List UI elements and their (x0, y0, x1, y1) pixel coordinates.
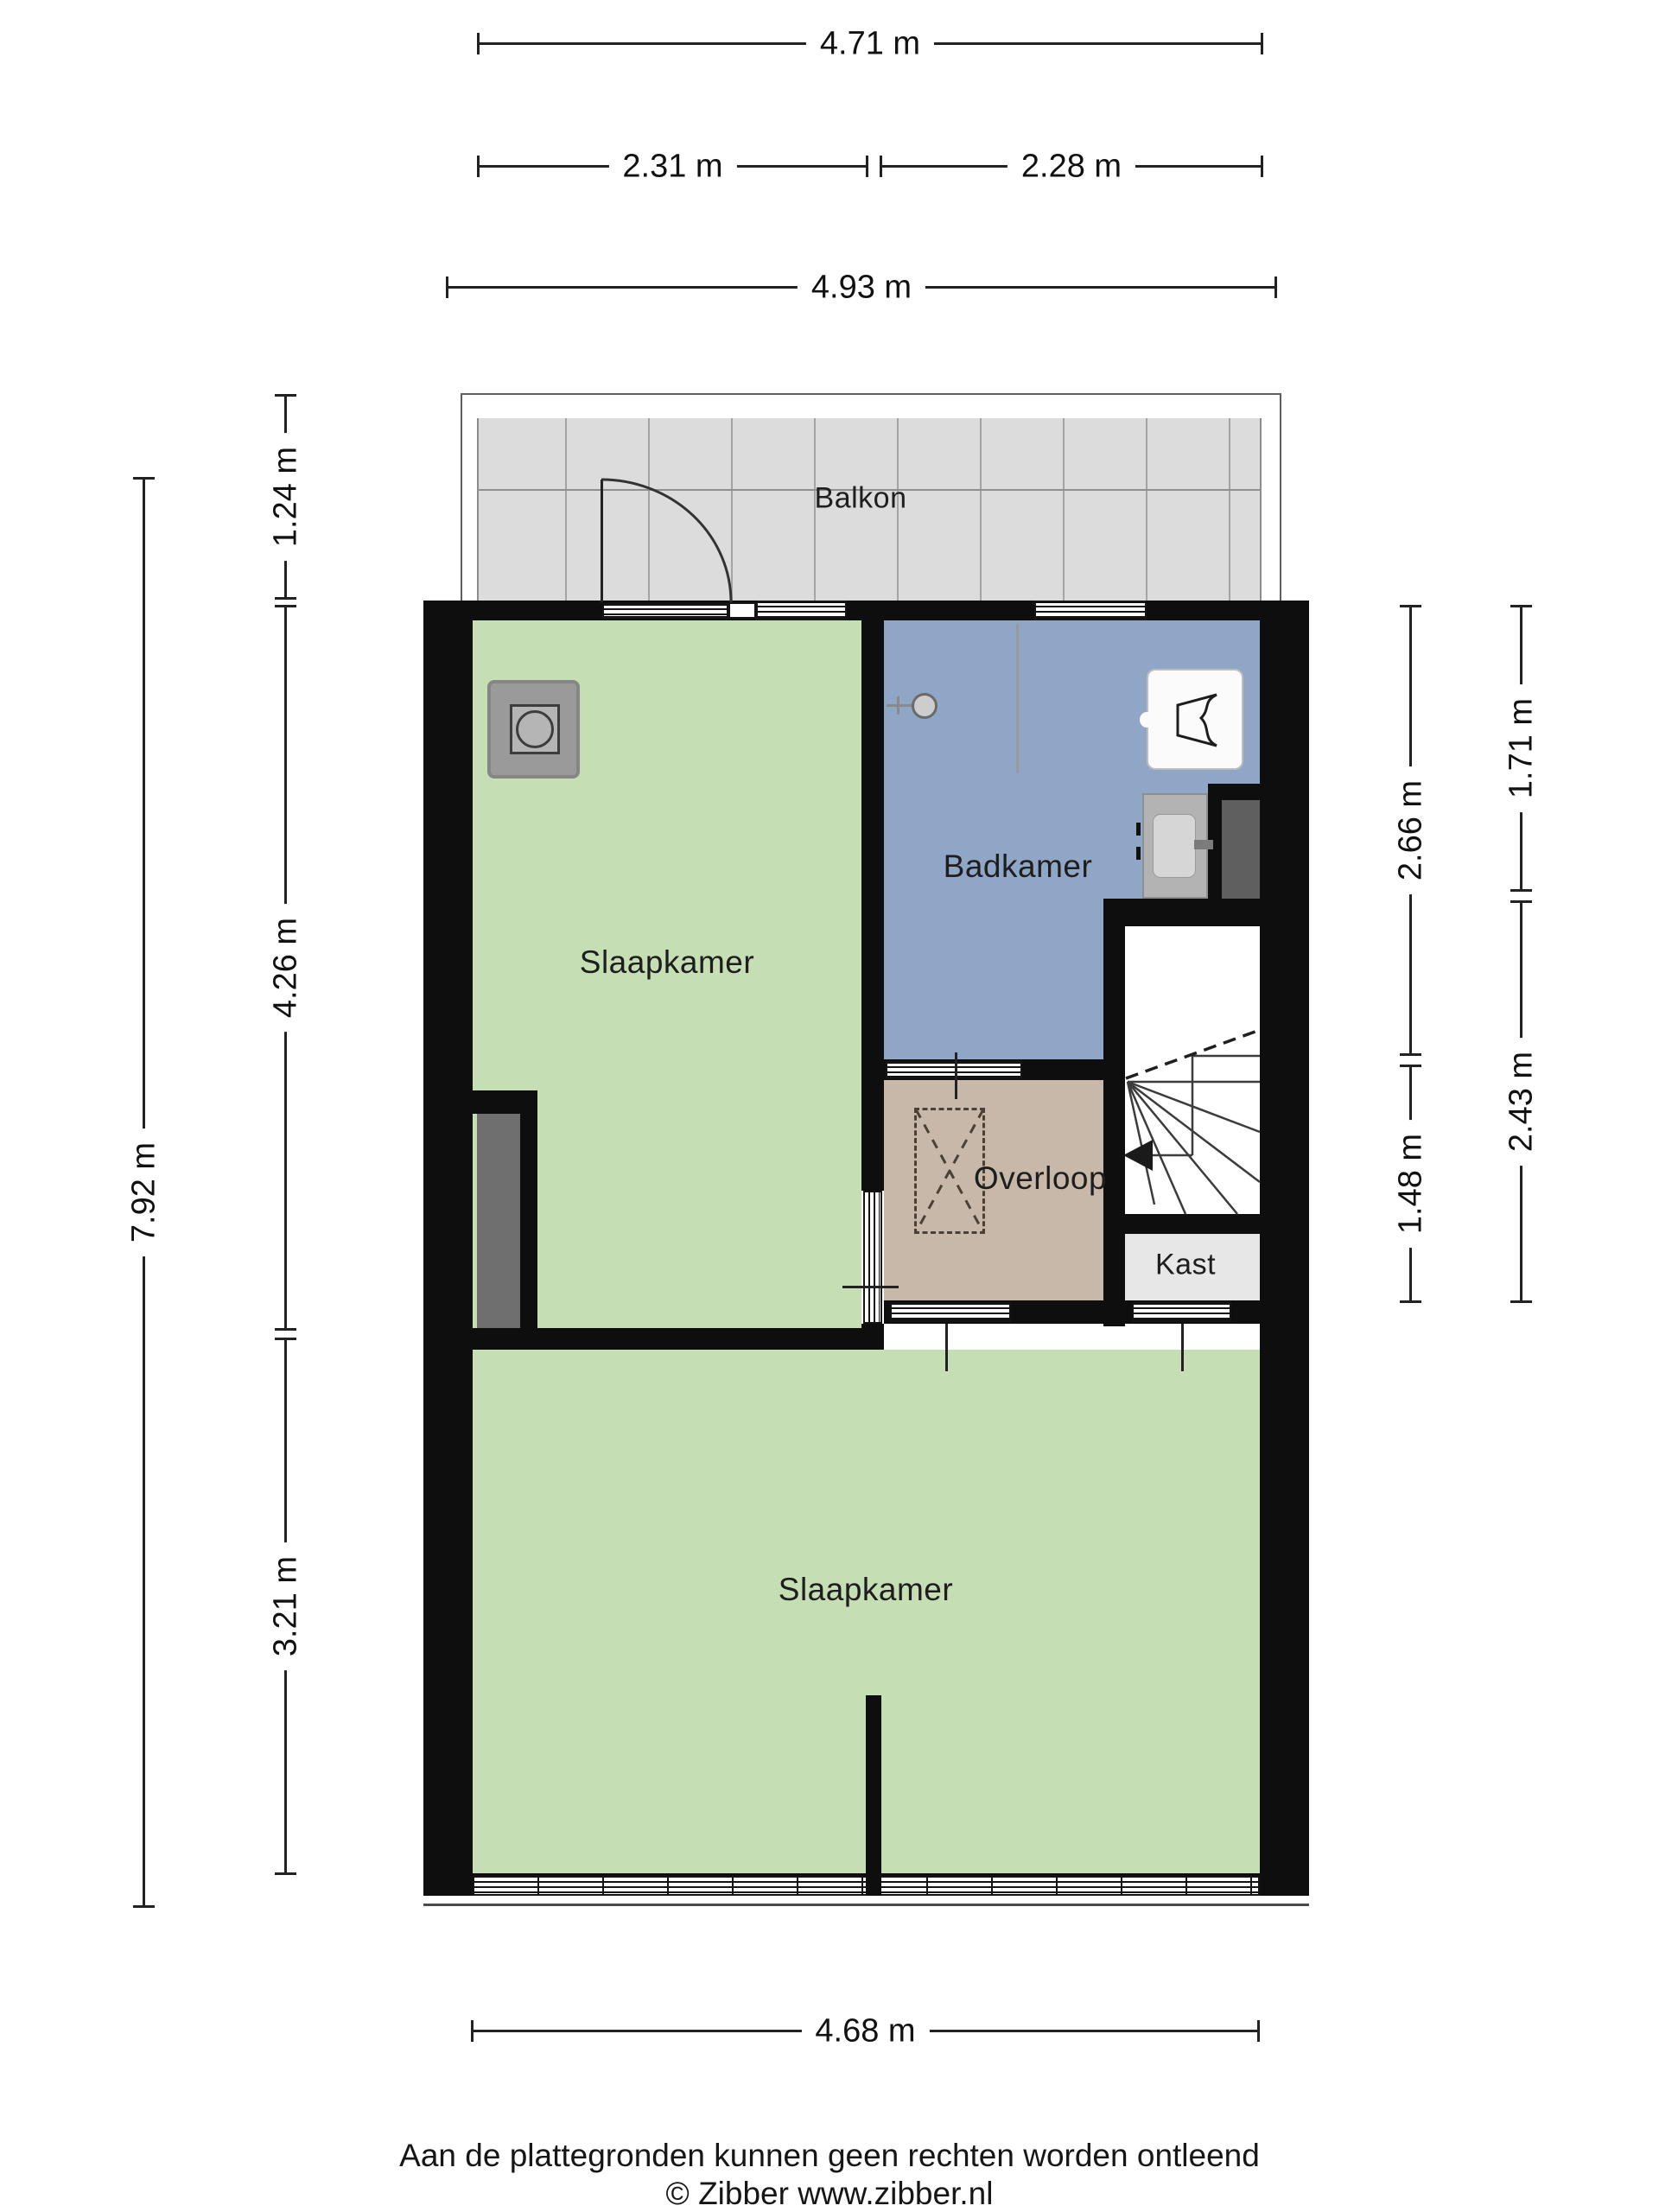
dimension-top-right: 2.28 m (880, 156, 1263, 177)
door-leaf-kast (1181, 1324, 1184, 1371)
washing-machine-door (510, 704, 560, 754)
wall-kast-top (1125, 1214, 1260, 1234)
door-leaf-overloop-slaapkamer2 (945, 1324, 948, 1371)
sink-tick-2 (1136, 847, 1141, 860)
shower-screen (1016, 624, 1019, 773)
wardrobe (477, 1114, 520, 1328)
room-label-overloop: Overloop (974, 1160, 1107, 1197)
faucet-icon (1194, 840, 1213, 849)
sink-tick-1 (1136, 823, 1141, 836)
dimension-bottom-total: 4.68 m (471, 2020, 1260, 2042)
door-leaf-slaapkamer1 (842, 1286, 899, 1288)
footer-copyright: © Zibber www.zibber.nl (0, 2176, 1659, 2212)
door-leaf-balcony (601, 480, 603, 602)
wall-corner-block (861, 1324, 884, 1350)
dimension-right-inner-top: 2.66 m (1400, 605, 1421, 1056)
room-stairwell (1125, 926, 1260, 1214)
footer-disclaimer: Aan de plattegronden kunnen geen rechten… (0, 2138, 1659, 2174)
wall-bedroom-divider (423, 1328, 861, 1350)
wall-stub-bottom-bedroom (866, 1695, 881, 1896)
balcony-door-threshold (602, 603, 728, 619)
toilet-icon (1147, 669, 1243, 770)
wall-left (423, 601, 473, 1905)
wall-right (1260, 601, 1309, 1905)
door-opening-overloop-slaapkamer2 (890, 1302, 1011, 1322)
shaft (1222, 800, 1260, 907)
door-opening-slaapkamer1 (863, 1191, 882, 1324)
dimension-left-mid: 4.26 m (275, 605, 296, 1331)
dimension-left-bottom: 3.21 m (275, 1338, 296, 1875)
floorplan-canvas: Balkon Slaapkamer Badkamer Overloop Kast… (0, 0, 1659, 2212)
room-label-balkon: Balkon (815, 482, 907, 516)
door-opening-badkamer (886, 1061, 1022, 1078)
window-sill-bottom (423, 1896, 1309, 1906)
dimension-right-inner-bottom: 1.48 m (1400, 1065, 1421, 1303)
dimension-left-balcony: 1.24 m (275, 394, 296, 600)
door-leaf-badkamer (955, 1052, 957, 1099)
room-label-kast: Kast (1155, 1249, 1216, 1282)
wardrobe-cap (473, 1090, 537, 1114)
shower-valve-icon (897, 696, 899, 715)
dimension-left-total: 7.92 m (133, 477, 155, 1908)
window-band-pier (866, 1875, 881, 1897)
shower-arm-icon (887, 704, 914, 707)
wardrobe-side-wall (520, 1114, 537, 1328)
shower-head-icon (912, 693, 938, 719)
door-pier (728, 602, 756, 619)
wall-green-blue-divider (861, 601, 884, 1191)
room-label-slaapkamer-1: Slaapkamer (580, 944, 754, 981)
dimension-right-outer-bottom: 2.43 m (1510, 900, 1532, 1303)
wall-stair-divider (1103, 899, 1125, 1326)
wall-under-shaft (1103, 899, 1260, 926)
washing-machine-icon (487, 680, 580, 779)
window-badkamer-top (1034, 601, 1147, 620)
window-slaapkamer1-top (756, 601, 847, 620)
dimension-top-left: 2.31 m (477, 156, 868, 177)
dimension-top-outer: 4.93 m (446, 276, 1277, 298)
dimension-right-outer-top: 1.71 m (1510, 605, 1532, 892)
door-opening-kast (1132, 1302, 1231, 1322)
room-label-slaapkamer-2: Slaapkamer (779, 1572, 953, 1608)
dimension-top-total: 4.71 m (477, 33, 1263, 54)
room-label-badkamer: Badkamer (944, 849, 1093, 885)
sink-icon (1142, 793, 1208, 899)
toilet-notch (1140, 712, 1154, 728)
